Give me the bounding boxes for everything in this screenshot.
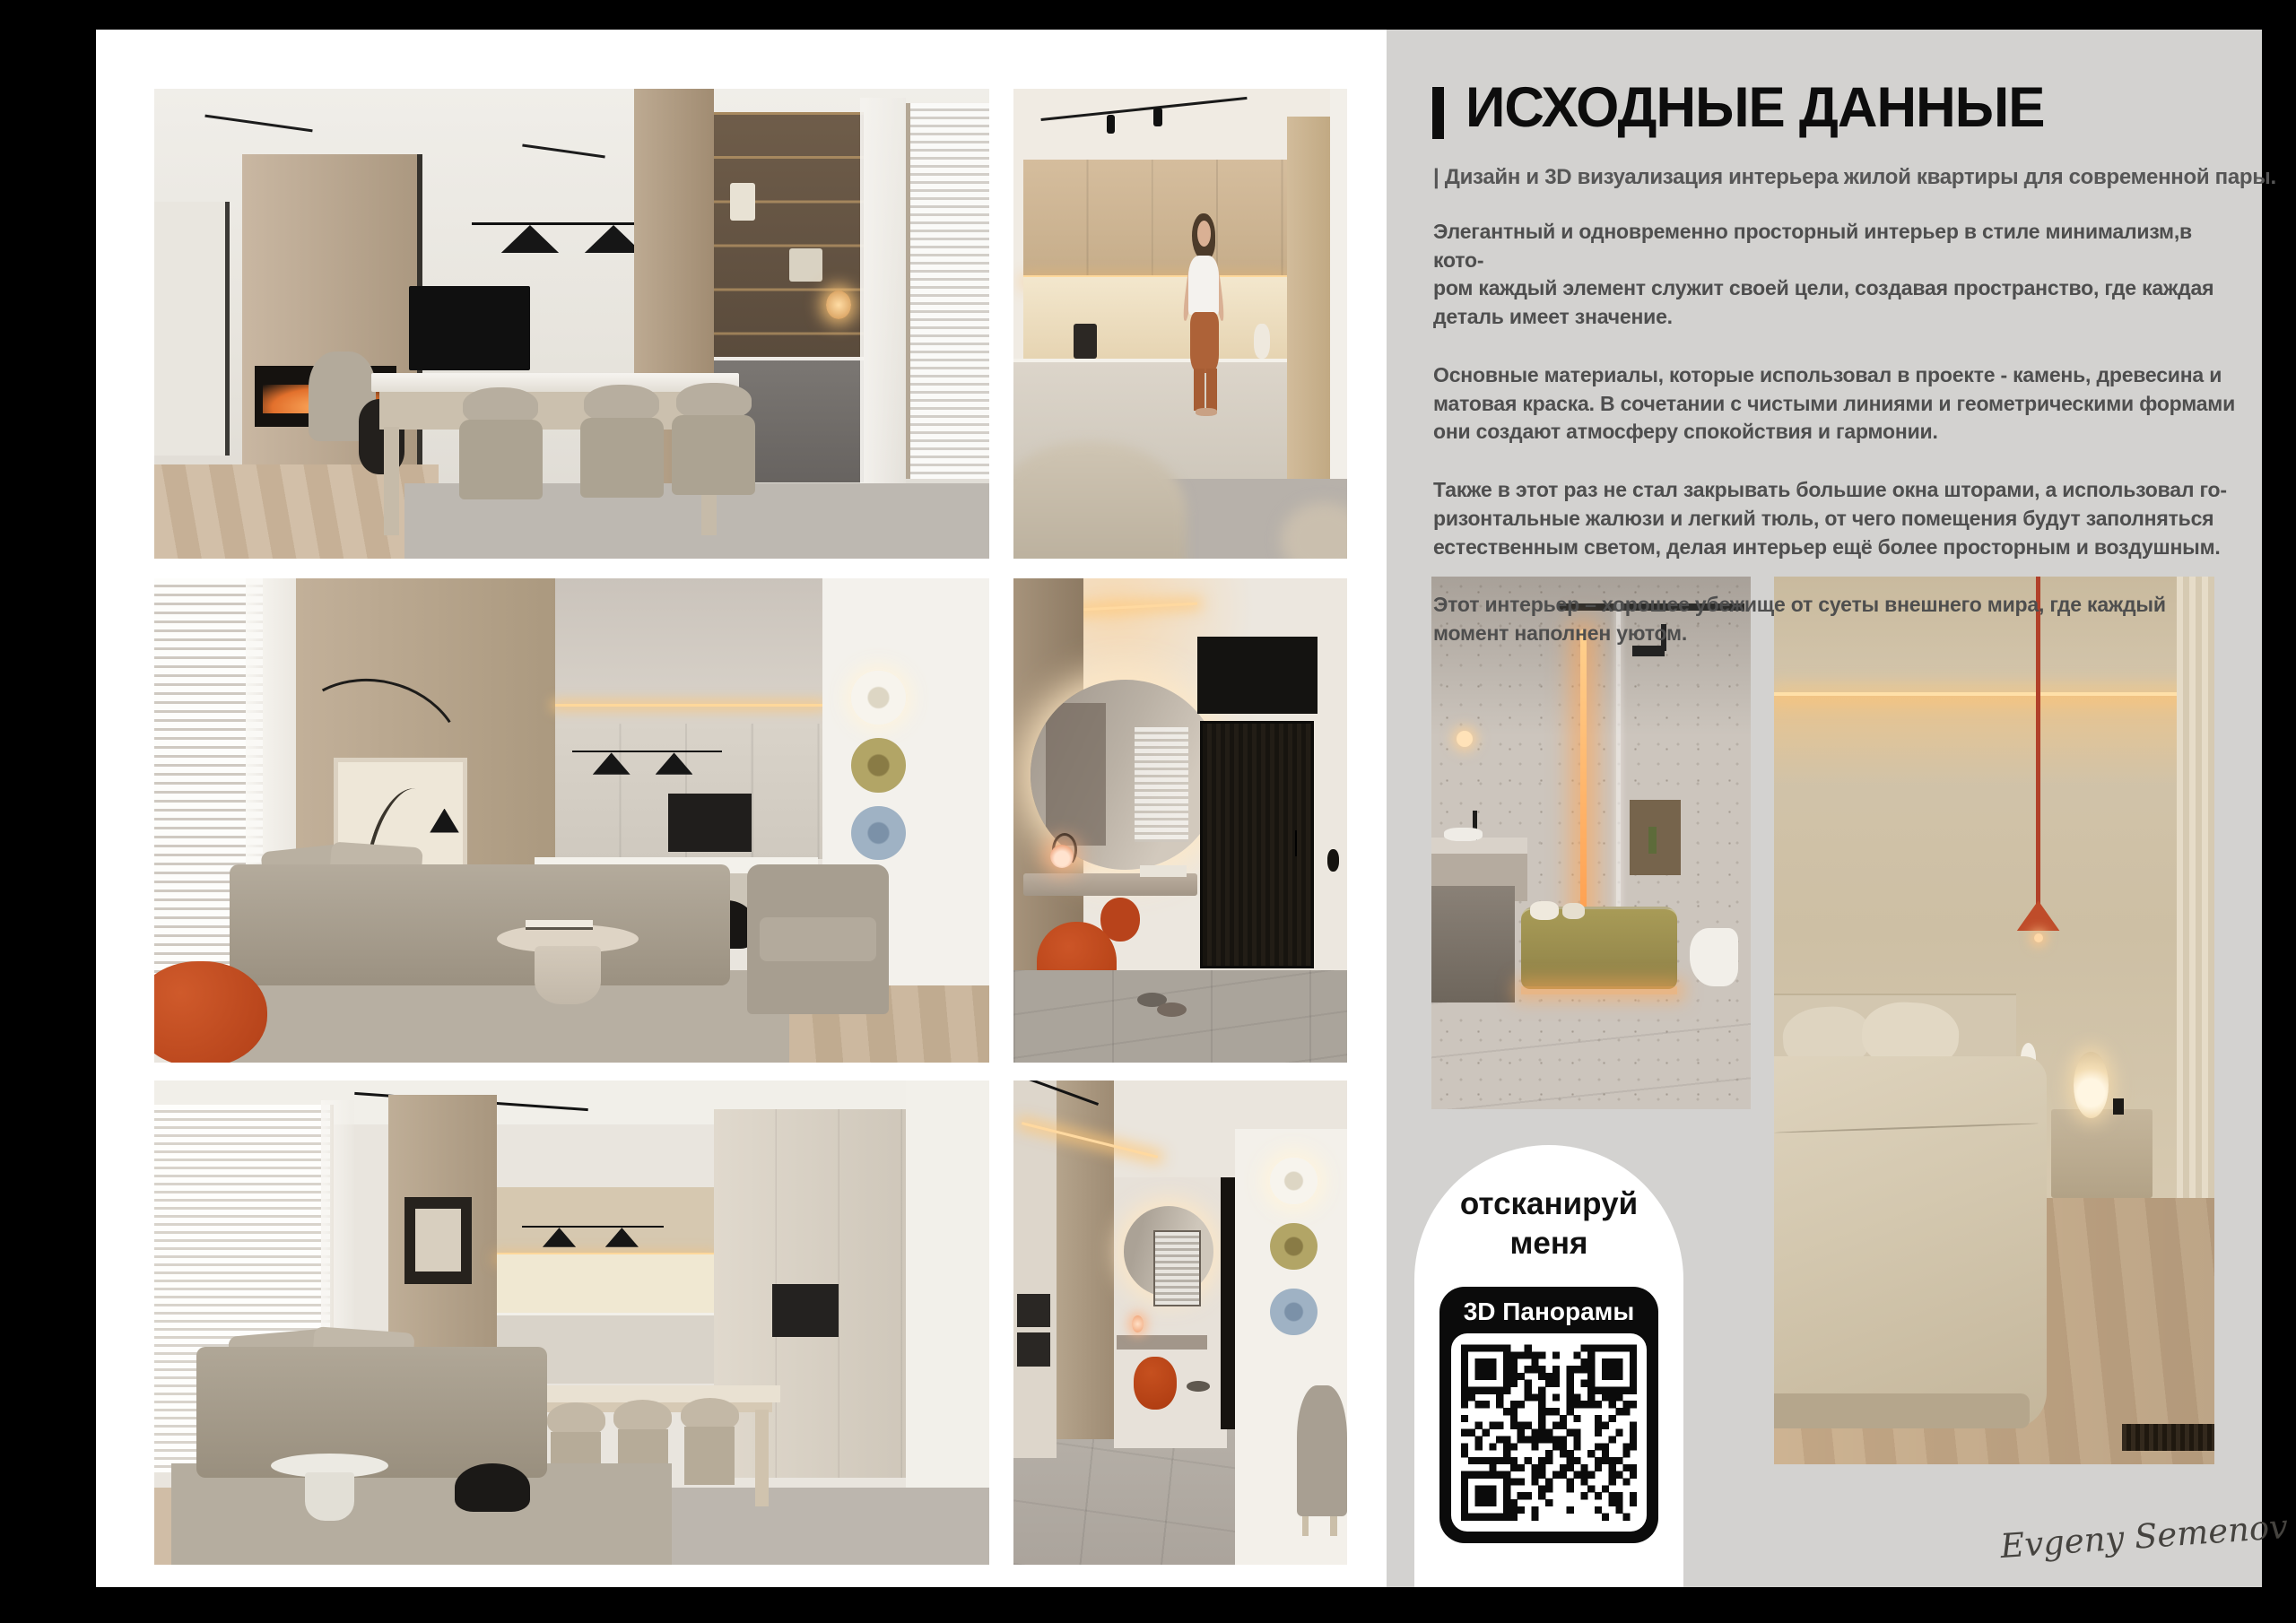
photo-dining-area (154, 89, 989, 559)
coffee-table-base (305, 1472, 355, 1521)
dining-chair (676, 383, 752, 421)
upper-cabinets (497, 1187, 714, 1255)
tall-wood-cabinet (1287, 117, 1330, 483)
counter-jar (1254, 324, 1271, 359)
table-leg (384, 427, 399, 535)
tile-grout-lines (1013, 970, 1347, 1063)
bed-duvet (1774, 1056, 2047, 1429)
armchair-seat (760, 917, 876, 961)
table-leg (755, 1410, 769, 1506)
shadow-area (1431, 886, 1515, 1003)
sheer-curtain (2177, 577, 2214, 1287)
page-subtitle: | Дизайн и 3D визуализация интерьера жил… (1433, 165, 2249, 190)
under-tub-light (1521, 986, 1677, 994)
dining-chair (684, 1427, 735, 1485)
shelf-decor (730, 183, 755, 221)
photo-kitchen-portrait (1013, 89, 1347, 559)
shelf-lighting (714, 112, 865, 356)
wall-disc-lamp-olive (851, 738, 906, 793)
dining-chair (459, 420, 543, 499)
art-print (415, 1209, 460, 1271)
towel (1562, 903, 1585, 919)
wall-disc-lamp-blue (851, 806, 906, 861)
towel (1530, 901, 1559, 920)
paragraph: Этот интерьер – хорошее убежище от суеты… (1433, 591, 2245, 647)
rug (171, 1463, 673, 1565)
wall-disc-lamp-white (1270, 1158, 1317, 1204)
wall-hung-toilet (1690, 928, 1737, 986)
paragraph: Основные материалы, которые использовал … (1433, 361, 2245, 447)
woman-face (1197, 221, 1211, 247)
floor-tile-lines (1431, 1002, 1751, 1109)
oval-table-lamp (2074, 1052, 2109, 1118)
photo-bedroom (1774, 577, 2214, 1464)
modular-sofa (230, 864, 731, 985)
floating-console (1117, 1335, 1206, 1350)
slippers (1157, 1002, 1187, 1017)
mirror-reflection-window (1153, 1230, 1200, 1306)
black-plug (2113, 1098, 2124, 1115)
sheer-curtain (860, 98, 906, 492)
paragraph: Элегантный и одновременно просторный инт… (1433, 218, 2245, 332)
window-blinds (906, 103, 989, 479)
nightstand (2051, 1109, 2152, 1198)
doorbell (1327, 849, 1339, 871)
portable-lamp (1050, 845, 1074, 868)
paragraph: Также в этот раз не стал закрывать больш… (1433, 476, 2245, 561)
page-title: ИСХОДНЫЕ ДАННЫЕ (1465, 75, 2222, 140)
scan-me-label: отсканируй меня (1414, 1185, 1683, 1263)
shelf-decor (789, 248, 822, 282)
photo-corridor (1013, 1081, 1347, 1565)
photo-entry-hall (1013, 578, 1347, 1063)
red-pouf (1134, 1357, 1177, 1410)
built-in-ovens (668, 794, 752, 852)
mattress-edge (1774, 1393, 2030, 1429)
soap-bottle (1648, 827, 1657, 854)
woman-blouse (1188, 256, 1218, 315)
dark-niche (1221, 1177, 1236, 1429)
description-text: Элегантный и одновременно просторный инт… (1433, 218, 2245, 678)
cabinet-seams (1023, 160, 1287, 277)
woman-leg (1194, 369, 1205, 411)
magazines (1140, 865, 1187, 877)
coffee-machine (1074, 324, 1097, 359)
woman-trousers (1190, 312, 1219, 373)
tile-floor (672, 1488, 989, 1565)
pendant-bar (522, 1226, 664, 1228)
scan-me-badge: отсканируй меня 3D Панорамы (1414, 1145, 1683, 1587)
led-glow (1774, 696, 2214, 785)
vanity-counter (1431, 838, 1527, 854)
dining-chair (672, 415, 755, 495)
table-lamp (826, 291, 851, 318)
dining-chair (463, 387, 538, 425)
qr-panel: 3D Панорамы (1439, 1287, 1658, 1543)
coffee-table-base (535, 946, 601, 1004)
wall-disc-lamp-blue (1270, 1289, 1317, 1335)
black-side-table (455, 1463, 530, 1512)
woman-shoes (1196, 408, 1217, 415)
built-in-oven (1017, 1332, 1050, 1367)
pendant-bulb (2034, 933, 2043, 942)
woman-leg (1206, 369, 1217, 411)
portable-lamp (1132, 1315, 1144, 1332)
dining-chair (1297, 1385, 1347, 1516)
led-strip (555, 704, 822, 707)
kitchen-cabinets (1013, 1081, 1057, 1458)
title-accent-bar (1432, 87, 1444, 139)
qr-panel-title: 3D Панорамы (1439, 1298, 1658, 1326)
photo-living-kitchen (154, 1081, 989, 1565)
spotlight (1153, 108, 1161, 126)
spotlight (1107, 115, 1115, 134)
qr-code (1451, 1333, 1647, 1532)
pendant-bar (572, 751, 723, 752)
backsplash (1023, 277, 1287, 360)
backsplash (497, 1254, 714, 1313)
mirror-reflection-curtain (1135, 727, 1187, 841)
tv-screen (409, 286, 530, 370)
black-transom-panel (1197, 637, 1318, 714)
dining-chair (584, 385, 659, 422)
door-handle (1295, 830, 1297, 857)
built-in-oven (1017, 1294, 1050, 1328)
dining-chair (580, 418, 664, 498)
wall-disc-lamp-olive (1270, 1223, 1317, 1270)
photo-living-room (154, 578, 989, 1063)
slippers (1187, 1381, 1210, 1392)
door (154, 202, 230, 456)
mirror-reflection-door (1046, 703, 1107, 846)
sink-basin (1444, 828, 1483, 840)
wall-disc-lamp-white (851, 671, 906, 725)
black-entry-door (1200, 721, 1313, 968)
books-stack (526, 920, 592, 931)
floor-vent-grille (2122, 1424, 2214, 1451)
built-in-ovens (772, 1284, 839, 1337)
